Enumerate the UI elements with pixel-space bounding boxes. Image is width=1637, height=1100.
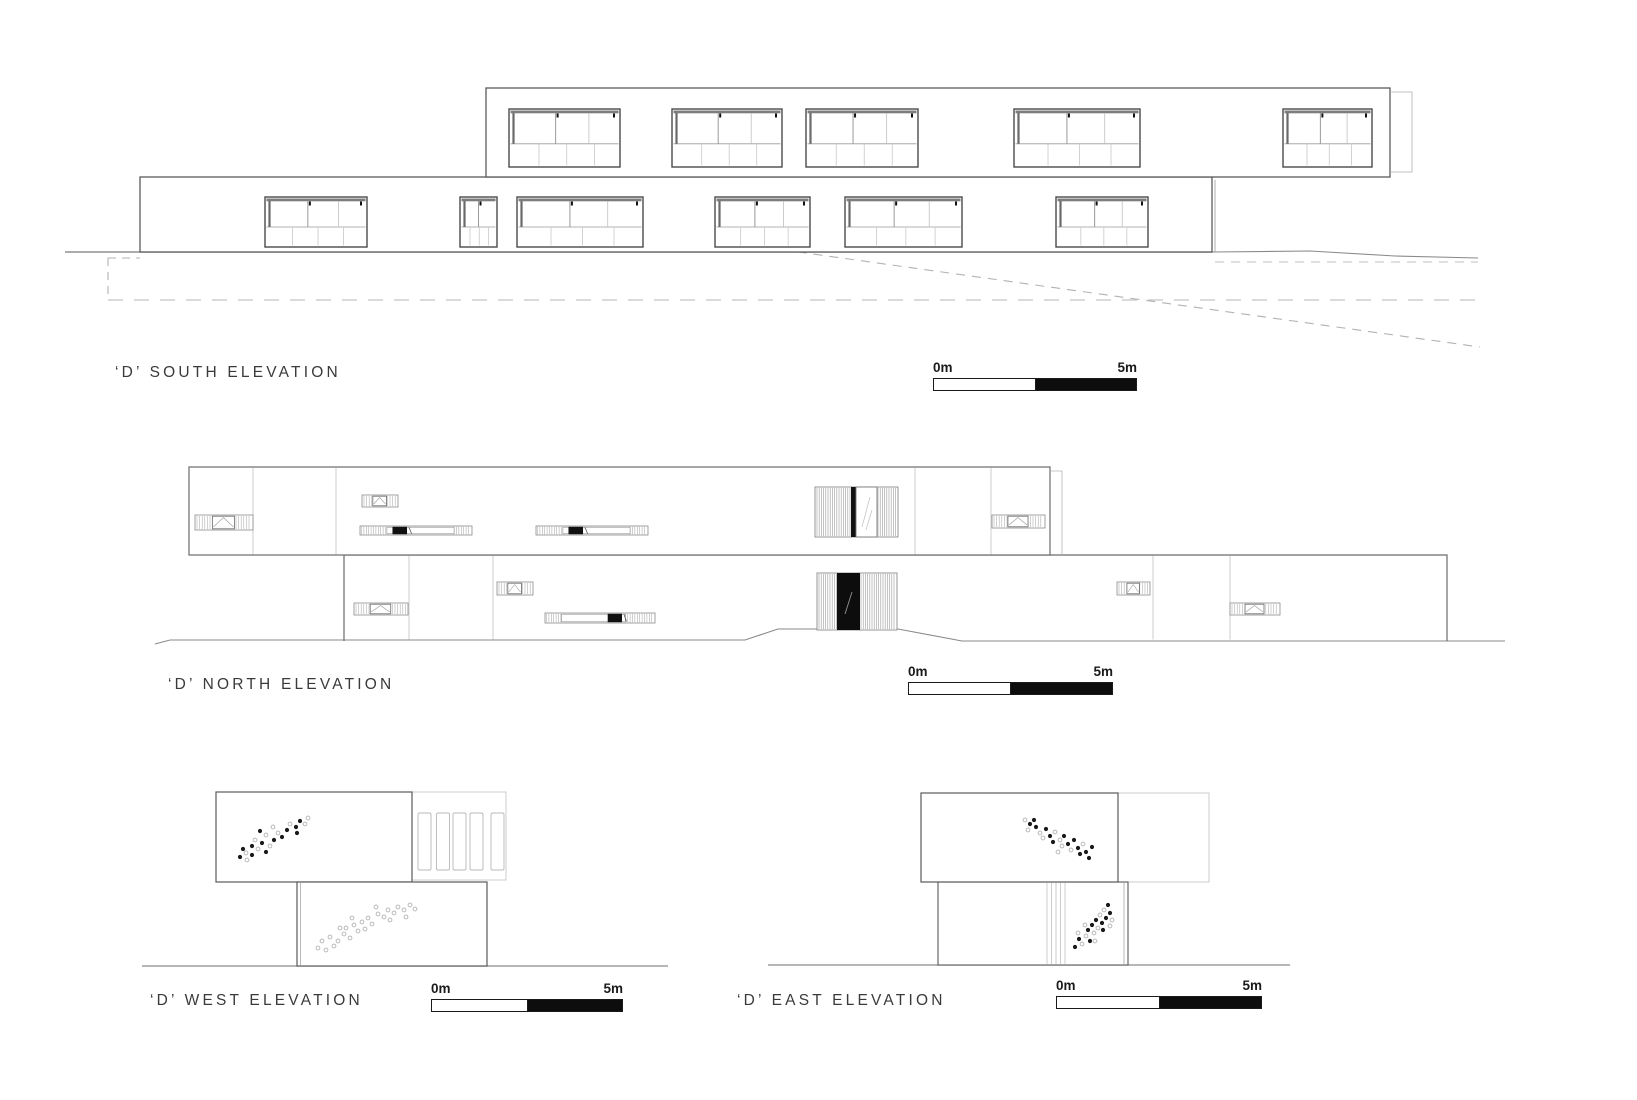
window-glyph: [845, 197, 962, 247]
window-fitting: [1133, 114, 1135, 118]
window-glyph: [715, 197, 810, 247]
scale-bar-white-segment: [909, 683, 1011, 694]
scale-end-label: 5m: [1242, 978, 1262, 993]
upper-storey-outline: [486, 88, 1390, 177]
north-elevation-label: ‘D’ NORTH ELEVATION: [168, 676, 394, 694]
window-head: [1016, 111, 1139, 114]
louvre-fin: [470, 813, 483, 870]
louvre-fin: [453, 813, 466, 870]
perforation-dot: [298, 819, 302, 823]
perforation-dot: [1106, 903, 1110, 907]
scale-bar-graphic: [431, 999, 623, 1012]
upper-box-outline: [921, 793, 1118, 882]
scale-end-label: 5m: [1117, 360, 1137, 375]
window-head: [808, 111, 917, 114]
perforation-dot: [241, 847, 245, 851]
scale-bar-black-segment: [1011, 683, 1112, 694]
window-fitting: [557, 114, 559, 118]
window-fitting: [1141, 202, 1143, 206]
parapet-return-line: [1390, 92, 1412, 172]
drawing-canvas: [0, 0, 1637, 1100]
window-frame: [845, 197, 962, 247]
east-elevation-drawing: [768, 793, 1290, 965]
window-frame: [715, 197, 810, 247]
drawing-sheet: ‘D’ SOUTH ELEVATION ‘D’ NORTH ELEVATION …: [0, 0, 1637, 1100]
window-fitting: [1321, 114, 1323, 118]
window-fitting: [360, 202, 362, 206]
vent-window-glyph: [497, 582, 533, 595]
south-scale-bar: 0m 5m: [933, 360, 1137, 391]
south-elevation-label: ‘D’ SOUTH ELEVATION: [115, 364, 341, 382]
vent-pane: [212, 516, 234, 529]
window-fitting: [775, 114, 777, 118]
window-fitting: [636, 202, 638, 206]
upper-door-glyph: [815, 487, 898, 537]
window-head: [462, 199, 496, 202]
perforation-dot: [1078, 852, 1082, 856]
louvre-fin: [437, 813, 450, 870]
louvre-fin: [418, 813, 431, 870]
window-frame: [1283, 109, 1372, 167]
scale-bar-white-segment: [432, 1000, 528, 1011]
window-frame: [517, 197, 643, 247]
strip-window-glyph: [536, 526, 648, 535]
perforation-dot: [238, 855, 242, 859]
ground-line: [155, 629, 1505, 644]
rear-box-outline: [1118, 793, 1209, 882]
window-glyph: [509, 109, 620, 167]
south-elevation-drawing: [65, 88, 1480, 347]
perforation-dot: [250, 844, 254, 848]
window-frame: [1056, 197, 1148, 247]
perforation-dot: [1090, 845, 1094, 849]
window-frame: [806, 109, 918, 167]
window-fitting: [955, 202, 957, 206]
window-fitting: [756, 202, 758, 206]
perforation-dot: [1072, 838, 1076, 842]
scale-bar-graphic: [908, 682, 1113, 695]
perforation-dot: [1032, 818, 1036, 822]
perforation-dot: [1094, 918, 1098, 922]
vent-window-glyph: [354, 603, 408, 615]
door-black-jamb: [851, 487, 856, 537]
window-glyph: [1283, 109, 1372, 167]
window-head: [267, 199, 366, 202]
perforation-dot: [264, 850, 268, 854]
window-fitting: [895, 202, 897, 206]
window-fitting: [1068, 114, 1070, 118]
scale-bar-graphic: [933, 378, 1137, 391]
strip-black-panel: [608, 614, 622, 622]
perforation-dot: [295, 831, 299, 835]
strip-window-glyph: [545, 613, 655, 623]
scale-end-label: 5m: [603, 981, 623, 996]
upper-box-outline: [216, 792, 412, 882]
vent-window-glyph: [362, 495, 398, 507]
window-head: [511, 111, 619, 114]
scale-bar-white-segment: [1057, 997, 1160, 1008]
perforation-dot: [1077, 937, 1081, 941]
window-glyph: [517, 197, 643, 247]
window-frame: [509, 109, 620, 167]
upper-band-outline: [189, 467, 1050, 555]
scale-bar-black-segment: [1036, 379, 1137, 390]
scale-end-label: 5m: [1093, 664, 1113, 679]
perforation-dot: [1028, 822, 1032, 826]
door-opening: [837, 573, 860, 630]
vent-window-glyph: [1117, 582, 1150, 595]
perforation-dot: [1048, 834, 1052, 838]
lower-door-glyph: [817, 573, 897, 630]
west-elevation-drawing: [142, 792, 668, 966]
window-glyph: [1056, 197, 1148, 247]
window-fitting: [854, 114, 856, 118]
window-head: [674, 111, 781, 114]
window-frame: [265, 197, 367, 247]
window-fitting: [803, 202, 805, 206]
perforation-dot: [1090, 923, 1094, 927]
window-frame: [1014, 109, 1140, 167]
perforation-dot: [1066, 842, 1070, 846]
perforation-dot: [1051, 840, 1055, 844]
window-head: [1058, 199, 1147, 202]
scale-start-label: 0m: [1056, 978, 1076, 993]
perforation-dot: [272, 838, 276, 842]
west-elevation-label: ‘D’ WEST ELEVATION: [150, 992, 363, 1010]
strip-black-panel: [392, 527, 407, 534]
perforation-dot: [280, 835, 284, 839]
scale-start-label: 0m: [431, 981, 451, 996]
perforation-dot: [1100, 921, 1104, 925]
band-return-line: [1050, 471, 1062, 555]
perforation-dot: [1086, 928, 1090, 932]
perforation-dot: [1088, 939, 1092, 943]
west-scale-bar: 0m 5m: [431, 981, 623, 1012]
scale-bar-black-segment: [1160, 997, 1262, 1008]
window-fitting: [480, 202, 482, 206]
window-glyph: [672, 109, 782, 167]
window-glyph: [460, 197, 497, 247]
perforation-dot: [285, 828, 289, 832]
perforation-dot: [258, 829, 262, 833]
window-fitting: [1096, 202, 1098, 206]
window-fitting: [1365, 114, 1367, 118]
window-fitting: [911, 114, 913, 118]
window-glyph: [1014, 109, 1140, 167]
east-elevation-label: ‘D’ EAST ELEVATION: [737, 992, 946, 1010]
perforation-dot: [294, 825, 298, 829]
strip-window-glyph: [360, 526, 472, 535]
perforation-dot: [1062, 834, 1066, 838]
lower-box-outline: [938, 882, 1128, 965]
north-scale-bar: 0m 5m: [908, 664, 1113, 695]
scale-start-label: 0m: [908, 664, 928, 679]
scale-bar-graphic: [1056, 996, 1262, 1009]
north-elevation-drawing: [155, 467, 1505, 644]
scale-bar-black-segment: [528, 1000, 623, 1011]
window-head: [847, 199, 961, 202]
east-scale-bar: 0m 5m: [1056, 978, 1262, 1009]
perforation-dot: [1073, 945, 1077, 949]
vent-window-glyph: [195, 515, 253, 530]
louvre-fin: [491, 813, 504, 870]
perforation-dot: [1076, 846, 1080, 850]
perforation-dot: [1034, 825, 1038, 829]
perforation-dot: [1084, 850, 1088, 854]
ground-line: [1212, 251, 1478, 258]
perforation-dot: [250, 853, 254, 857]
window-head: [519, 199, 642, 202]
perforation-dot: [1087, 856, 1091, 860]
scale-bar-white-segment: [934, 379, 1036, 390]
window-glyph: [806, 109, 918, 167]
perforation-dot: [1108, 911, 1112, 915]
window-fitting: [571, 202, 573, 206]
perforation-dot: [1101, 928, 1105, 932]
perforation-dot: [1104, 916, 1108, 920]
strip-black-panel: [568, 527, 583, 534]
window-head: [717, 199, 809, 202]
perforation-dot: [260, 841, 264, 845]
window-frame: [672, 109, 782, 167]
window-fitting: [309, 202, 311, 206]
window-head: [1285, 111, 1371, 114]
window-fitting: [613, 114, 615, 118]
perforation-dot: [1044, 827, 1048, 831]
vent-window-glyph: [1230, 603, 1280, 615]
lower-box-outline: [297, 882, 487, 966]
scale-start-label: 0m: [933, 360, 953, 375]
window-glyph: [265, 197, 367, 247]
window-fitting: [719, 114, 721, 118]
vent-window-glyph: [992, 515, 1045, 528]
